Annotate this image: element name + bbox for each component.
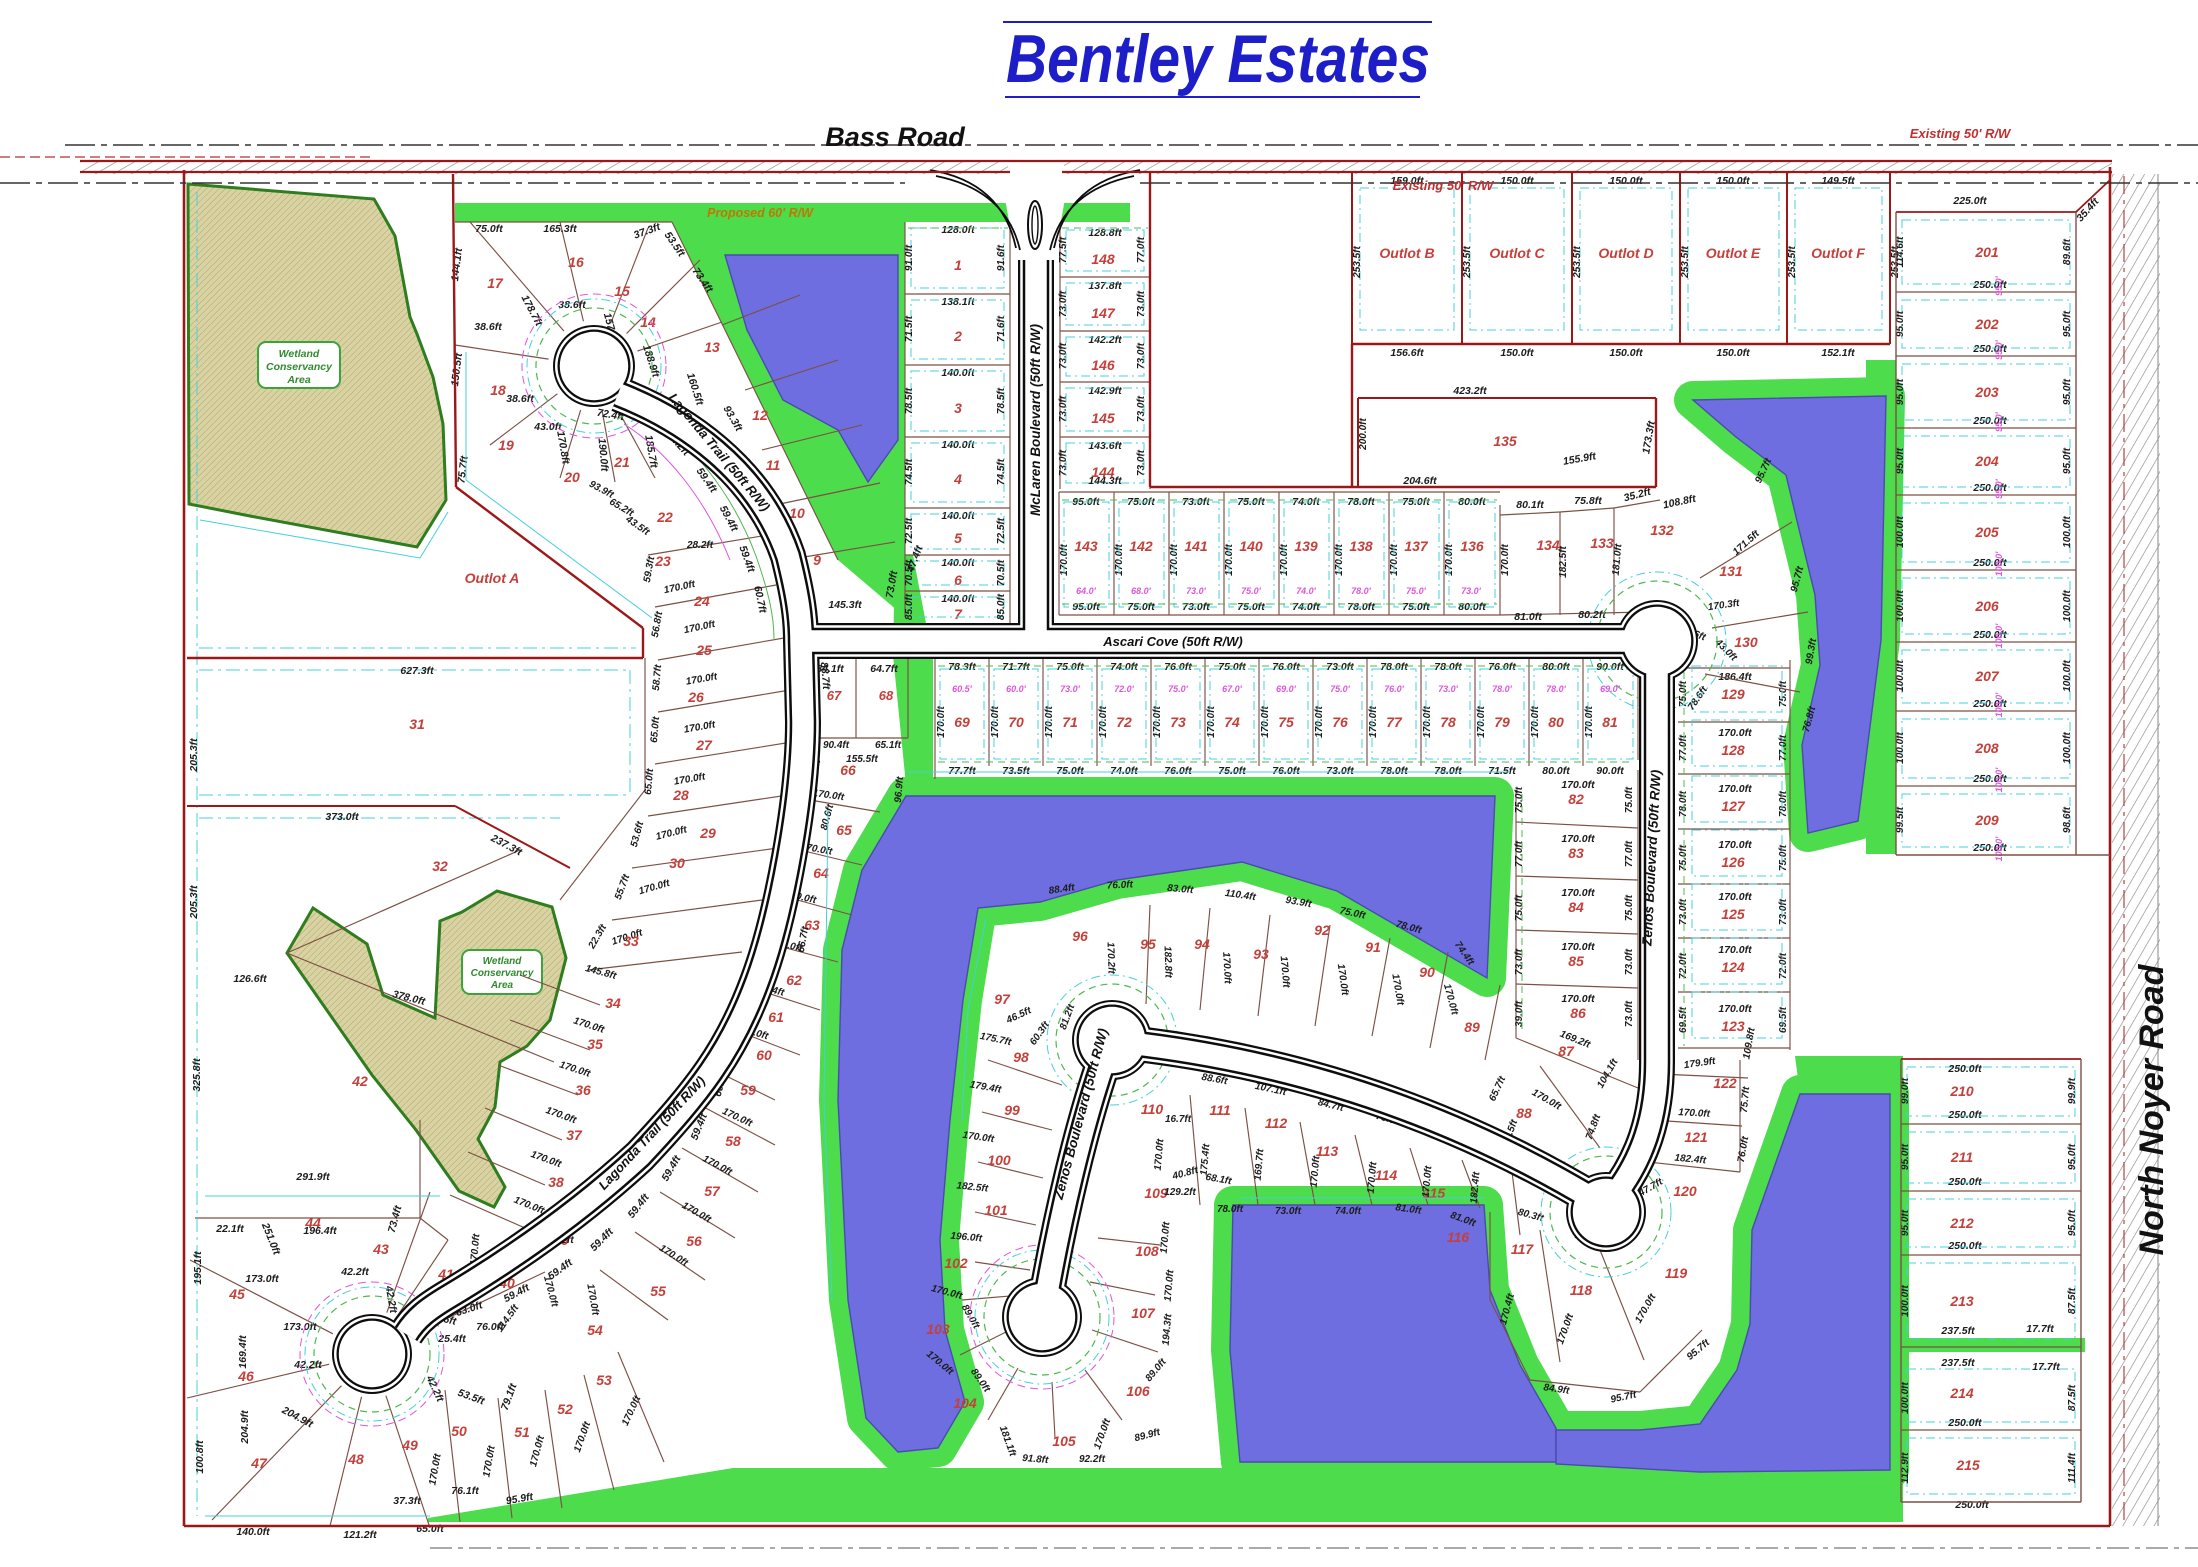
svg-text:38.6ft: 38.6ft	[474, 321, 502, 333]
svg-text:24: 24	[693, 593, 710, 609]
svg-text:143: 143	[1074, 538, 1098, 554]
svg-text:237.5ft: 237.5ft	[1940, 1325, 1975, 1337]
svg-text:17: 17	[487, 275, 504, 291]
svg-text:54: 54	[587, 1322, 603, 1338]
svg-text:60.0': 60.0'	[1006, 684, 1027, 694]
svg-text:83.0ft: 83.0ft	[1167, 883, 1195, 896]
svg-text:77.0ft: 77.0ft	[1136, 236, 1147, 263]
svg-text:170.0ft: 170.0ft	[1500, 543, 1511, 575]
svg-text:14: 14	[640, 314, 656, 330]
svg-text:73.0ft: 73.0ft	[1136, 395, 1147, 422]
svg-text:73.0ft: 73.0ft	[1275, 1206, 1302, 1217]
svg-text:70: 70	[1008, 714, 1024, 730]
svg-text:250.0ft: 250.0ft	[1947, 1176, 1982, 1188]
svg-text:76.0ft: 76.0ft	[1272, 661, 1300, 673]
svg-text:73.5ft: 73.5ft	[1002, 765, 1030, 777]
svg-text:156.6ft: 156.6ft	[1390, 347, 1424, 359]
svg-text:250.0ft: 250.0ft	[1947, 1417, 1982, 1429]
svg-text:201: 201	[1974, 244, 1999, 260]
svg-text:Bentley Estates: Bentley Estates	[1006, 21, 1430, 97]
svg-text:69: 69	[954, 714, 970, 730]
svg-text:72: 72	[1116, 714, 1132, 730]
svg-text:89.6ft: 89.6ft	[2062, 238, 2073, 265]
svg-text:91.8ft: 91.8ft	[1022, 1453, 1050, 1466]
svg-text:150.0ft: 150.0ft	[1716, 175, 1750, 187]
svg-text:133: 133	[1590, 535, 1614, 551]
svg-text:205: 205	[1974, 524, 1999, 540]
svg-text:95.0': 95.0'	[1994, 339, 2004, 360]
svg-text:108: 108	[1135, 1243, 1159, 1259]
svg-text:22: 22	[656, 509, 673, 525]
svg-text:83: 83	[1568, 845, 1584, 861]
svg-text:26: 26	[687, 689, 704, 705]
svg-text:74.5ft: 74.5ft	[996, 458, 1007, 485]
svg-text:93: 93	[1253, 946, 1269, 962]
svg-text:4: 4	[953, 471, 962, 487]
svg-text:132: 132	[1650, 522, 1674, 538]
svg-text:60.5': 60.5'	[952, 684, 973, 694]
svg-text:Outlot B: Outlot B	[1379, 245, 1434, 261]
svg-text:75.0': 75.0'	[1330, 684, 1351, 694]
svg-text:28.2ft: 28.2ft	[686, 540, 714, 551]
svg-text:75.0': 75.0'	[1406, 586, 1427, 596]
svg-text:75.0ft: 75.0ft	[475, 223, 503, 235]
svg-text:78.0ft: 78.0ft	[1434, 661, 1462, 673]
svg-text:170.2ft: 170.2ft	[1104, 942, 1116, 975]
svg-text:15: 15	[614, 283, 630, 299]
svg-text:62: 62	[786, 972, 802, 988]
svg-text:81: 81	[1602, 714, 1618, 730]
svg-text:150.0ft: 150.0ft	[1609, 347, 1643, 359]
svg-text:Outlot E: Outlot E	[1706, 245, 1761, 261]
svg-text:146: 146	[1091, 357, 1115, 373]
svg-text:138.1ft: 138.1ft	[941, 296, 975, 308]
svg-text:65.0ft: 65.0ft	[643, 768, 656, 796]
svg-text:McLaren Boulevard (50ft R/W): McLaren Boulevard (50ft R/W)	[1028, 323, 1043, 516]
svg-text:73.0ft: 73.0ft	[1058, 395, 1069, 422]
svg-text:77.7ft: 77.7ft	[948, 765, 976, 777]
svg-text:170.0ft: 170.0ft	[1206, 705, 1217, 737]
svg-text:140.0ft: 140.0ft	[941, 367, 975, 379]
svg-text:75.0ft: 75.0ft	[1056, 765, 1084, 777]
svg-text:97: 97	[994, 991, 1011, 1007]
svg-text:85.0ft: 85.0ft	[904, 593, 915, 620]
svg-text:214: 214	[1949, 1385, 1974, 1401]
svg-text:127: 127	[1721, 798, 1746, 814]
svg-text:75.0ft: 75.0ft	[1218, 765, 1246, 777]
svg-text:169.4ft: 169.4ft	[237, 1335, 249, 1369]
svg-text:130: 130	[1734, 634, 1758, 650]
svg-text:98: 98	[1013, 1049, 1029, 1065]
svg-text:76.0ft: 76.0ft	[1164, 765, 1192, 777]
svg-text:88: 88	[1516, 1105, 1532, 1121]
svg-text:69.0': 69.0'	[1600, 684, 1621, 694]
svg-text:92: 92	[1314, 922, 1330, 938]
svg-text:170.0ft: 170.0ft	[1561, 779, 1595, 791]
svg-text:225.0ft: 225.0ft	[1952, 195, 1987, 207]
svg-text:95.0': 95.0'	[1994, 478, 2004, 499]
svg-text:206: 206	[1974, 598, 1999, 614]
svg-text:Area: Area	[286, 374, 311, 386]
svg-text:253.5ft: 253.5ft	[1462, 245, 1473, 278]
svg-text:208: 208	[1974, 740, 1999, 756]
svg-text:31: 31	[409, 716, 425, 732]
svg-text:74.0': 74.0'	[1296, 586, 1317, 596]
svg-text:85: 85	[1568, 953, 1584, 969]
svg-text:140.0ft: 140.0ft	[941, 510, 975, 522]
svg-text:78.0ft: 78.0ft	[1434, 765, 1462, 777]
svg-text:Outlot D: Outlot D	[1598, 245, 1653, 261]
svg-text:78.0': 78.0'	[1546, 684, 1567, 694]
svg-text:16: 16	[568, 254, 584, 270]
svg-text:170.0ft: 170.0ft	[1220, 952, 1233, 985]
svg-text:99.9ft: 99.9ft	[2067, 1077, 2078, 1104]
svg-text:150.0ft: 150.0ft	[1716, 347, 1750, 359]
svg-text:75.0ft: 75.0ft	[1514, 786, 1525, 813]
svg-text:53: 53	[596, 1372, 612, 1388]
svg-text:173.0ft: 173.0ft	[245, 1273, 279, 1285]
svg-text:75.0ft: 75.0ft	[1624, 786, 1635, 813]
svg-text:142.9ft: 142.9ft	[1088, 385, 1122, 397]
svg-text:170.0ft: 170.0ft	[1476, 705, 1487, 737]
svg-text:100: 100	[987, 1152, 1011, 1168]
svg-text:64.0': 64.0'	[1076, 586, 1097, 596]
svg-text:42: 42	[351, 1073, 368, 1089]
svg-text:75: 75	[1278, 714, 1294, 730]
svg-text:182.8ft: 182.8ft	[1161, 946, 1173, 979]
svg-text:212: 212	[1949, 1215, 1974, 1231]
svg-text:205.3ft: 205.3ft	[188, 885, 200, 920]
svg-text:95.0': 95.0'	[1994, 411, 2004, 432]
svg-text:112: 112	[1265, 1115, 1288, 1131]
svg-text:73.0ft: 73.0ft	[1624, 1000, 1635, 1027]
svg-text:7: 7	[954, 606, 963, 622]
svg-text:30: 30	[669, 855, 685, 871]
svg-text:107: 107	[1131, 1305, 1156, 1321]
svg-text:95.0ft: 95.0ft	[2062, 310, 2073, 337]
svg-text:80.1ft: 80.1ft	[1516, 499, 1544, 511]
svg-text:170.0ft: 170.0ft	[936, 705, 947, 737]
svg-text:11: 11	[766, 457, 781, 473]
svg-text:37: 37	[566, 1127, 583, 1143]
svg-text:253.5ft: 253.5ft	[1680, 245, 1691, 278]
svg-text:170.0ft: 170.0ft	[1314, 705, 1325, 737]
svg-text:128: 128	[1721, 742, 1745, 758]
svg-text:140.0ft: 140.0ft	[941, 557, 975, 569]
svg-text:79: 79	[1494, 714, 1510, 730]
svg-text:84: 84	[1568, 899, 1584, 915]
svg-text:126.6ft: 126.6ft	[233, 973, 267, 985]
svg-text:North Noyer Road: North Noyer Road	[2133, 963, 2171, 1255]
svg-text:170.0ft: 170.0ft	[1152, 705, 1163, 737]
svg-text:9: 9	[813, 552, 821, 568]
svg-text:150.0ft: 150.0ft	[1609, 175, 1643, 187]
svg-text:56: 56	[686, 1233, 702, 1249]
svg-text:205.3ft: 205.3ft	[188, 738, 200, 773]
svg-text:19: 19	[498, 437, 514, 453]
svg-text:17.7ft: 17.7ft	[2026, 1323, 2054, 1335]
svg-text:95.0ft: 95.0ft	[2062, 447, 2073, 474]
svg-text:94: 94	[1194, 936, 1210, 952]
svg-text:Ascari Cove (50ft R/W): Ascari Cove (50ft R/W)	[1102, 634, 1242, 649]
svg-text:121: 121	[1684, 1129, 1708, 1145]
svg-text:17.7ft: 17.7ft	[2032, 1361, 2060, 1373]
svg-text:60: 60	[756, 1047, 772, 1063]
svg-text:129: 129	[1721, 686, 1745, 702]
svg-text:73.0ft: 73.0ft	[1058, 449, 1069, 476]
svg-text:95.0ft: 95.0ft	[2067, 1143, 2078, 1170]
svg-text:16.7ft: 16.7ft	[1165, 1114, 1192, 1125]
svg-text:32: 32	[432, 858, 448, 874]
svg-text:Existing 50' R/W: Existing 50' R/W	[1910, 126, 2012, 141]
svg-text:76.0ft: 76.0ft	[1164, 661, 1192, 673]
svg-text:170.0ft: 170.0ft	[1718, 1003, 1752, 1015]
svg-text:137.8ft: 137.8ft	[1088, 280, 1122, 292]
svg-text:52: 52	[557, 1401, 573, 1417]
svg-text:Existing 50' R/W: Existing 50' R/W	[1393, 178, 1495, 193]
svg-text:102: 102	[944, 1255, 968, 1271]
svg-text:145: 145	[1091, 410, 1115, 426]
svg-text:37.3ft: 37.3ft	[393, 1495, 421, 1507]
svg-text:92.2ft: 92.2ft	[1079, 1454, 1106, 1465]
svg-text:152.1ft: 152.1ft	[1821, 347, 1855, 359]
svg-text:95: 95	[1140, 936, 1156, 952]
svg-text:91.0ft: 91.0ft	[904, 244, 915, 271]
svg-text:22.1ft: 22.1ft	[215, 1223, 244, 1235]
svg-text:74.0ft: 74.0ft	[1110, 661, 1138, 673]
svg-text:100.0': 100.0'	[1994, 623, 2004, 649]
svg-text:76.0ft: 76.0ft	[1107, 879, 1134, 891]
svg-text:215: 215	[1955, 1457, 1980, 1473]
svg-text:170.0ft: 170.0ft	[1584, 705, 1595, 737]
svg-text:73.0': 73.0'	[1060, 684, 1081, 694]
svg-text:75.7ft: 75.7ft	[1739, 1086, 1752, 1114]
svg-text:Conservancy: Conservancy	[471, 968, 534, 979]
svg-text:Wetland: Wetland	[483, 956, 523, 967]
svg-text:73.0ft: 73.0ft	[1058, 342, 1069, 369]
svg-text:77.0ft: 77.0ft	[1624, 840, 1635, 867]
svg-text:Outlot A: Outlot A	[465, 570, 520, 586]
svg-text:170.0ft: 170.0ft	[990, 705, 1001, 737]
svg-text:125: 125	[1721, 906, 1745, 922]
svg-text:143.6ft: 143.6ft	[1088, 440, 1122, 452]
svg-text:20: 20	[563, 469, 580, 485]
svg-text:78.5ft: 78.5ft	[904, 387, 915, 414]
svg-text:237.5ft: 237.5ft	[1940, 1357, 1975, 1369]
svg-text:123: 123	[1721, 1018, 1745, 1034]
svg-text:150.0ft: 150.0ft	[1500, 347, 1534, 359]
svg-text:196.4ft: 196.4ft	[303, 1225, 337, 1237]
svg-text:77: 77	[1386, 714, 1403, 730]
svg-text:204.6ft: 204.6ft	[1402, 475, 1437, 487]
svg-text:100.0': 100.0'	[1994, 551, 2004, 577]
svg-text:70.5ft: 70.5ft	[996, 559, 1007, 586]
svg-text:250.0ft: 250.0ft	[1954, 1499, 1989, 1511]
svg-text:29: 29	[699, 825, 716, 841]
svg-text:73.0ft: 73.0ft	[1136, 342, 1147, 369]
svg-text:95.0ft: 95.0ft	[2062, 378, 2073, 405]
svg-text:148: 148	[1091, 251, 1115, 267]
svg-text:105: 105	[1052, 1433, 1076, 1449]
svg-text:76.0ft: 76.0ft	[1488, 661, 1516, 673]
svg-text:142.2ft: 142.2ft	[1088, 334, 1122, 346]
svg-text:129.2ft: 129.2ft	[1164, 1187, 1196, 1198]
svg-text:128.0ft: 128.0ft	[941, 224, 975, 236]
svg-text:82: 82	[1568, 791, 1584, 807]
svg-text:202: 202	[1974, 316, 1999, 332]
svg-text:18: 18	[490, 382, 506, 398]
svg-text:100.0ft: 100.0ft	[2062, 515, 2073, 547]
svg-text:121.2ft: 121.2ft	[343, 1529, 377, 1541]
svg-text:170.0ft: 170.0ft	[1561, 833, 1595, 845]
svg-text:373.0ft: 373.0ft	[325, 811, 359, 823]
svg-text:170.0ft: 170.0ft	[1718, 891, 1752, 903]
svg-text:89: 89	[1464, 1019, 1480, 1035]
svg-text:73: 73	[1170, 714, 1186, 730]
svg-text:78.0ft: 78.0ft	[1380, 661, 1408, 673]
svg-text:50: 50	[451, 1423, 467, 1439]
svg-text:141: 141	[1184, 538, 1208, 554]
svg-text:73.0': 73.0'	[1186, 586, 1207, 596]
svg-text:42.2ft: 42.2ft	[293, 1359, 322, 1371]
svg-text:75.0ft: 75.0ft	[1778, 844, 1789, 871]
svg-text:71.5ft: 71.5ft	[1488, 765, 1516, 777]
svg-text:195.1ft: 195.1ft	[192, 1251, 204, 1285]
svg-text:325.8ft: 325.8ft	[191, 1058, 203, 1092]
svg-text:101: 101	[984, 1202, 1008, 1218]
svg-text:69.0': 69.0'	[1276, 684, 1297, 694]
svg-text:110: 110	[1141, 1101, 1164, 1117]
svg-text:170.0ft: 170.0ft	[1098, 705, 1109, 737]
svg-text:73.0ft: 73.0ft	[1624, 948, 1635, 975]
svg-text:58: 58	[725, 1133, 741, 1149]
svg-text:80.0ft: 80.0ft	[1542, 661, 1570, 673]
svg-text:80.0ft: 80.0ft	[1542, 765, 1570, 777]
svg-text:76: 76	[1332, 714, 1348, 730]
svg-text:253.5ft: 253.5ft	[1787, 245, 1798, 278]
svg-text:135: 135	[1493, 433, 1517, 449]
svg-text:100.0': 100.0'	[1994, 836, 2004, 862]
svg-text:78.0': 78.0'	[1351, 586, 1372, 596]
svg-text:165.3ft: 165.3ft	[543, 223, 577, 235]
svg-text:81.0ft: 81.0ft	[1514, 611, 1542, 623]
svg-text:80: 80	[1548, 714, 1564, 730]
svg-text:74.0ft: 74.0ft	[1335, 1206, 1362, 1217]
svg-text:68.0': 68.0'	[1131, 586, 1152, 596]
svg-text:250.0ft: 250.0ft	[1947, 1109, 1982, 1121]
svg-text:140.0ft: 140.0ft	[236, 1526, 270, 1538]
svg-text:75.0ft: 75.0ft	[1624, 894, 1635, 921]
svg-text:170.0ft: 170.0ft	[1718, 783, 1752, 795]
svg-text:291.9ft: 291.9ft	[295, 1171, 330, 1183]
svg-text:138: 138	[1349, 538, 1373, 554]
svg-text:98.6ft: 98.6ft	[2062, 806, 2073, 833]
svg-text:87.5ft: 87.5ft	[2067, 1384, 2078, 1411]
svg-text:213: 213	[1949, 1293, 1974, 1309]
svg-text:147: 147	[1091, 305, 1116, 321]
svg-text:73.0ft: 73.0ft	[1058, 290, 1069, 317]
svg-text:155.5ft: 155.5ft	[846, 754, 878, 765]
svg-text:124: 124	[1721, 959, 1745, 975]
svg-text:55: 55	[650, 1283, 666, 1299]
svg-text:1: 1	[954, 257, 962, 273]
svg-text:3: 3	[954, 400, 962, 416]
svg-text:170.0ft: 170.0ft	[1718, 839, 1752, 851]
svg-text:71.6ft: 71.6ft	[996, 315, 1007, 342]
svg-text:87: 87	[1558, 1043, 1575, 1059]
svg-text:95.0ft: 95.0ft	[2067, 1209, 2078, 1236]
svg-text:119: 119	[1665, 1265, 1688, 1281]
svg-text:103: 103	[926, 1321, 950, 1337]
svg-text:73.0': 73.0'	[1461, 586, 1482, 596]
svg-text:12: 12	[752, 407, 768, 423]
svg-text:73.0ft: 73.0ft	[1326, 661, 1354, 673]
svg-text:120: 120	[1673, 1183, 1697, 1199]
svg-text:78.0ft: 78.0ft	[1778, 790, 1789, 817]
svg-text:207: 207	[1974, 668, 2000, 684]
svg-text:100.0': 100.0'	[1994, 692, 2004, 718]
svg-text:140.0ft: 140.0ft	[941, 439, 975, 451]
svg-text:69.5ft: 69.5ft	[1778, 1006, 1789, 1033]
svg-text:210: 210	[1949, 1083, 1974, 1099]
svg-text:77.0ft: 77.0ft	[1514, 840, 1525, 867]
svg-text:85.0ft: 85.0ft	[996, 593, 1007, 620]
svg-text:104: 104	[953, 1395, 977, 1411]
svg-text:73.0ft: 73.0ft	[1136, 449, 1147, 476]
svg-text:Bass Road: Bass Road	[825, 122, 965, 152]
svg-text:170.0ft: 170.0ft	[1561, 993, 1595, 1005]
svg-text:76.0': 76.0'	[1384, 684, 1405, 694]
svg-text:Outlot F: Outlot F	[1811, 245, 1865, 261]
svg-text:134: 134	[1536, 537, 1560, 553]
svg-text:170.0ft: 170.0ft	[1718, 944, 1752, 956]
svg-text:145.3ft: 145.3ft	[828, 599, 862, 611]
svg-text:139: 139	[1294, 538, 1318, 554]
svg-text:87.5ft: 87.5ft	[2067, 1287, 2078, 1314]
svg-text:204.9ft: 204.9ft	[239, 1410, 251, 1445]
svg-text:118: 118	[1570, 1282, 1593, 1298]
svg-text:76.0ft: 76.0ft	[1272, 765, 1300, 777]
svg-text:Area: Area	[490, 980, 514, 991]
svg-text:47: 47	[250, 1455, 268, 1471]
svg-text:67: 67	[827, 688, 842, 703]
svg-text:90: 90	[1419, 964, 1435, 980]
svg-text:78.0ft: 78.0ft	[1217, 1204, 1244, 1215]
svg-text:96.9ft: 96.9ft	[893, 776, 906, 804]
svg-text:78.0': 78.0'	[1492, 684, 1513, 694]
svg-text:144.3ft: 144.3ft	[1088, 475, 1122, 487]
svg-text:95.0': 95.0'	[1994, 275, 2004, 296]
svg-text:170.0ft: 170.0ft	[1422, 705, 1433, 737]
svg-text:28: 28	[672, 787, 689, 803]
svg-text:42.2ft: 42.2ft	[340, 1266, 369, 1278]
svg-text:182.5ft: 182.5ft	[1558, 545, 1569, 577]
svg-text:Outlot C: Outlot C	[1489, 245, 1545, 261]
svg-text:250.0ft: 250.0ft	[1947, 1240, 1982, 1252]
svg-text:73.0': 73.0'	[1438, 684, 1459, 694]
svg-text:68: 68	[879, 688, 894, 703]
svg-text:65.1ft: 65.1ft	[875, 740, 902, 751]
svg-text:75.0ft: 75.0ft	[1778, 680, 1789, 707]
svg-text:73.0ft: 73.0ft	[1326, 765, 1354, 777]
svg-text:100.8ft: 100.8ft	[194, 1440, 206, 1474]
svg-text:170.0ft: 170.0ft	[1368, 705, 1379, 737]
svg-text:75.0ft: 75.0ft	[1056, 661, 1084, 673]
svg-text:111.4ft: 111.4ft	[2067, 1452, 2078, 1483]
svg-text:73.0ft: 73.0ft	[1778, 898, 1789, 925]
svg-text:74.0ft: 74.0ft	[1110, 765, 1138, 777]
svg-text:170.0ft: 170.0ft	[1530, 705, 1541, 737]
